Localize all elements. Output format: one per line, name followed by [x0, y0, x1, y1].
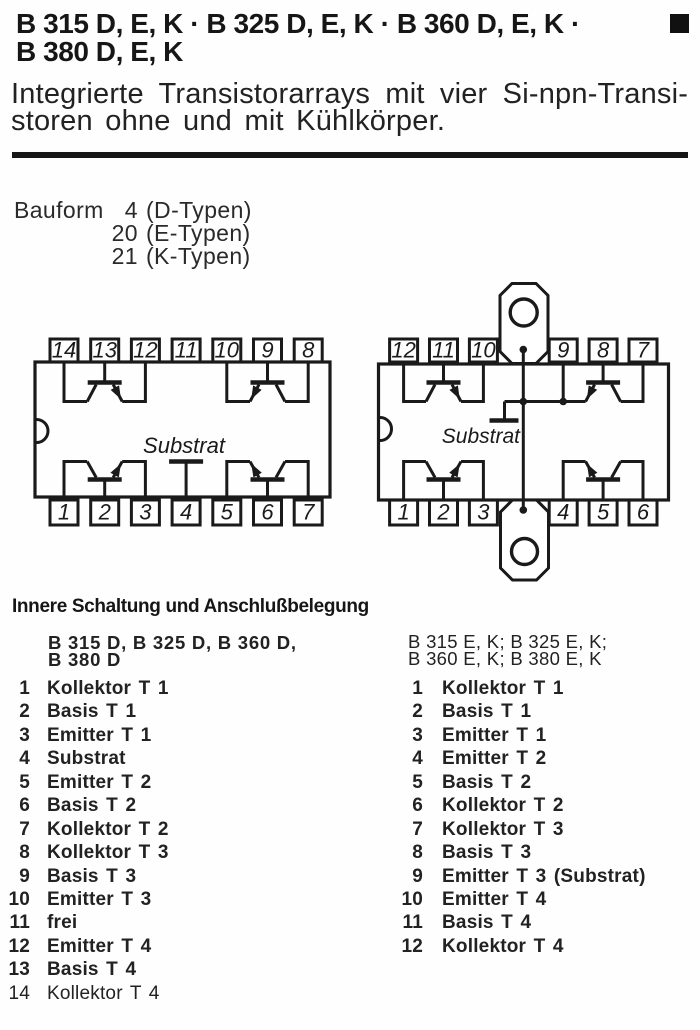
svg-text:3: 3 — [139, 500, 152, 525]
svg-text:12: 12 — [391, 338, 415, 363]
svg-text:11: 11 — [432, 338, 455, 363]
svg-text:4: 4 — [557, 500, 569, 525]
svg-text:14: 14 — [52, 338, 76, 363]
svg-text:8: 8 — [302, 338, 315, 363]
svg-text:10: 10 — [471, 338, 496, 363]
svg-text:Substrat: Substrat — [143, 433, 226, 458]
svg-text:13: 13 — [92, 338, 117, 363]
svg-text:3: 3 — [477, 500, 490, 525]
svg-text:4: 4 — [180, 500, 192, 525]
svg-text:7: 7 — [302, 500, 315, 525]
svg-text:7: 7 — [637, 338, 650, 363]
svg-text:12: 12 — [133, 338, 157, 363]
svg-text:9: 9 — [261, 338, 273, 363]
svg-text:1: 1 — [397, 500, 409, 525]
svg-text:2: 2 — [436, 500, 449, 525]
svg-text:8: 8 — [597, 338, 610, 363]
svg-text:9: 9 — [557, 338, 569, 363]
svg-text:5: 5 — [597, 500, 610, 525]
svg-text:11: 11 — [175, 338, 198, 363]
svg-text:10: 10 — [215, 338, 240, 363]
svg-text:1: 1 — [58, 500, 70, 525]
svg-text:6: 6 — [637, 500, 650, 525]
svg-text:2: 2 — [98, 500, 111, 525]
svg-text:6: 6 — [261, 500, 274, 525]
svg-text:Substrat: Substrat — [442, 425, 521, 448]
svg-text:5: 5 — [221, 500, 234, 525]
